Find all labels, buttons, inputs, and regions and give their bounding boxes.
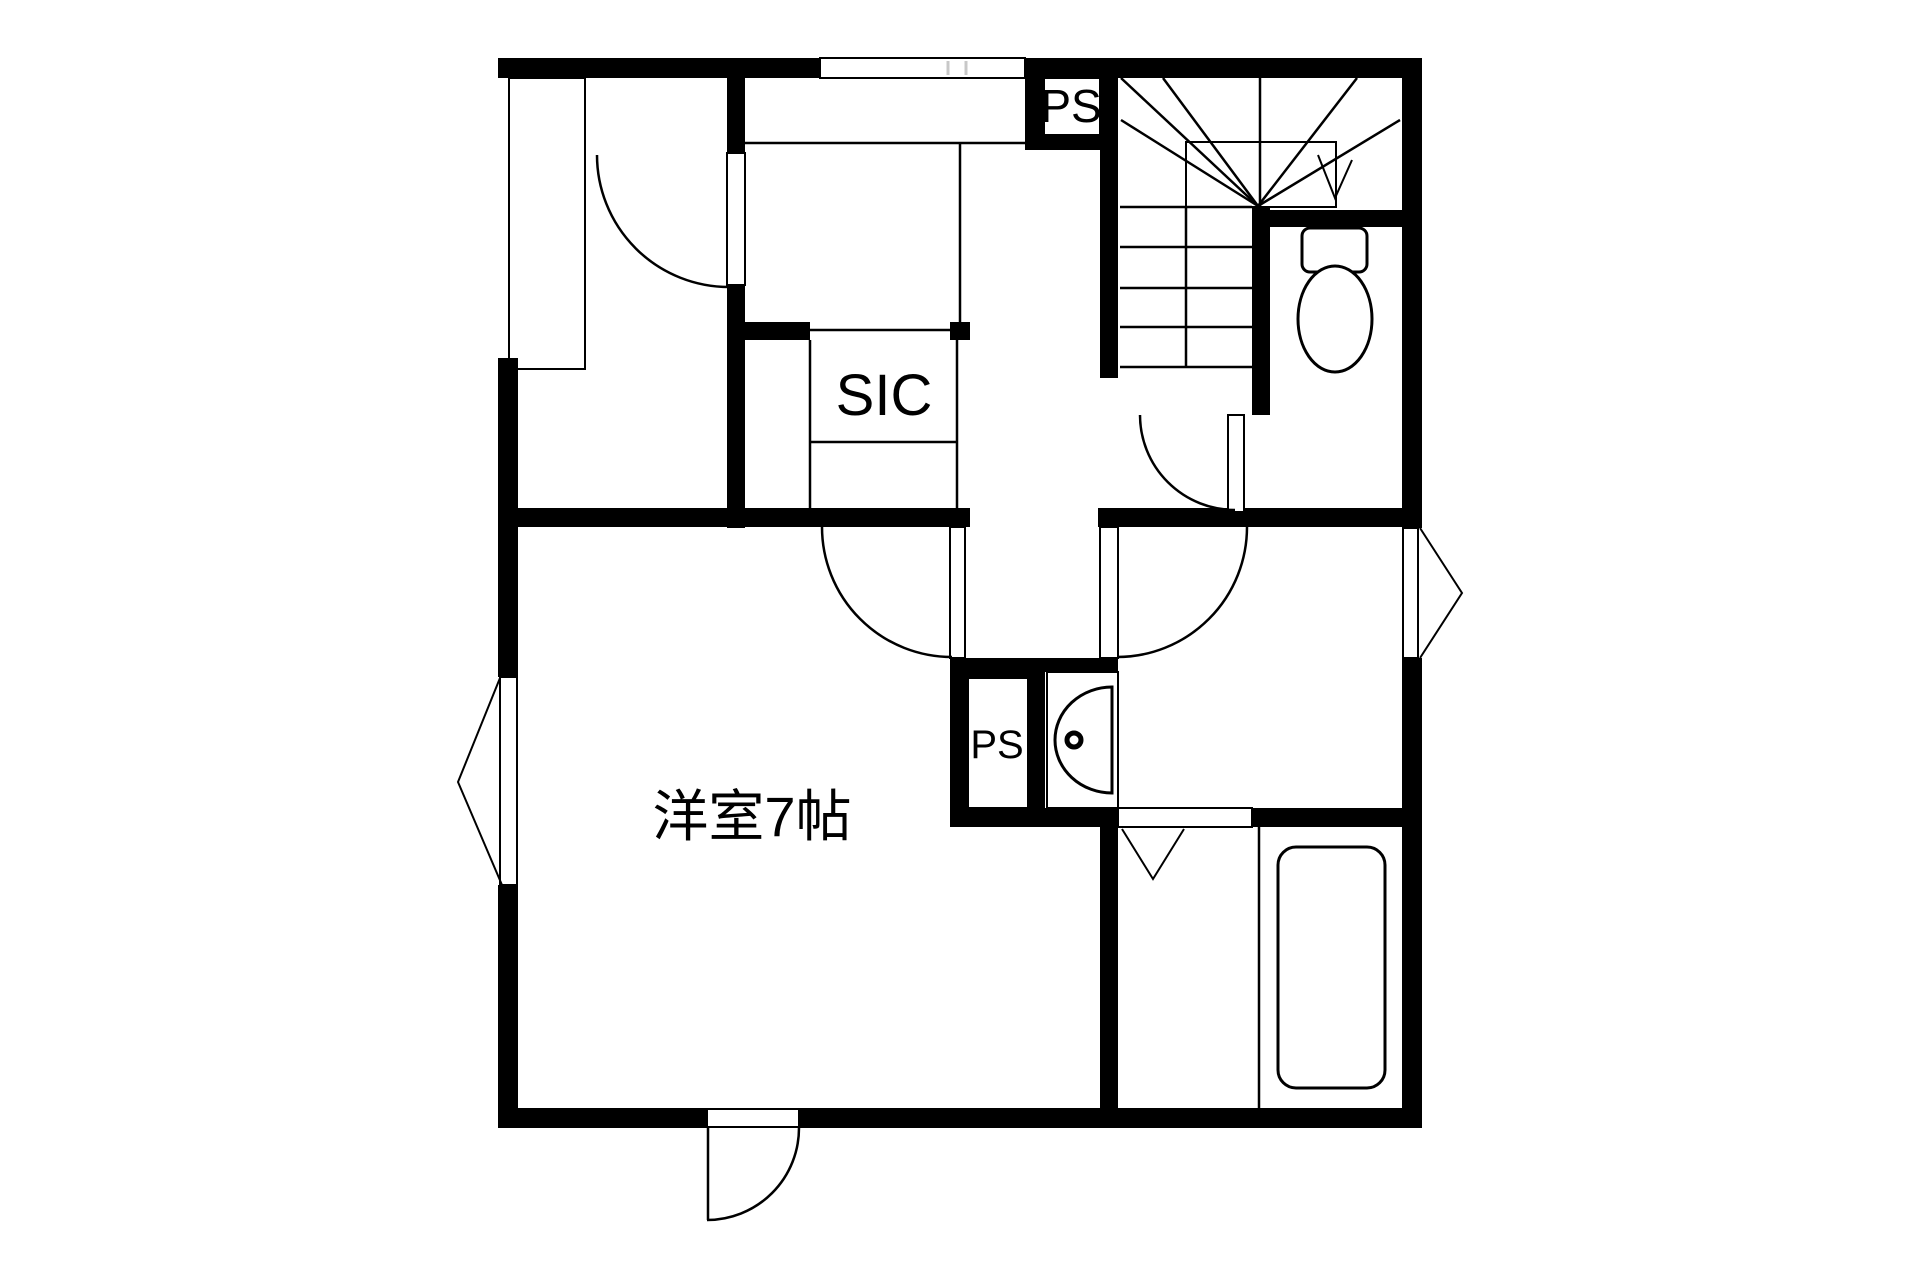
closet-room-door-leaf <box>727 153 745 285</box>
bathroom-west-wall <box>1100 827 1118 1108</box>
toilet-west-wall <box>1252 207 1270 415</box>
stair-west-wall <box>1100 150 1118 378</box>
bathtub <box>1278 847 1385 1088</box>
label-pipe-space-mid: PS <box>970 723 1023 767</box>
sic-wall-stub <box>743 322 810 340</box>
western-room-top-wall <box>498 508 970 527</box>
washroom-door-arc <box>1117 527 1247 657</box>
western-room-door-leaf <box>950 527 965 658</box>
bottom-wall-east <box>799 1108 1422 1128</box>
top-wall-west <box>498 58 820 78</box>
right-wall-upper <box>1402 78 1422 528</box>
left-closet-outline <box>509 78 585 369</box>
entrance-wall-node <box>950 322 970 340</box>
terrace-door-opening <box>707 1109 799 1127</box>
washroom-door-leaf <box>1100 527 1118 658</box>
right-wall-lower <box>1402 658 1422 1128</box>
east-window-triangle <box>1420 528 1462 658</box>
washroom-bottom-wall <box>1252 808 1403 827</box>
stair-winder-line-6 <box>1121 120 1258 206</box>
closet-room-wall-lower <box>727 283 745 528</box>
toilet-door-leaf <box>1228 415 1244 512</box>
sink-faucet <box>1067 733 1081 747</box>
door-arcs <box>597 155 1247 1220</box>
sink-top-bar <box>1045 658 1118 672</box>
entrance-sliding-door <box>820 58 1025 78</box>
toilet-top-wall <box>1270 210 1402 227</box>
top-wall-east <box>1118 58 1422 78</box>
bathroom-folding-door-mark <box>1122 829 1184 879</box>
label-shoe-in-closet: SIC <box>836 363 933 428</box>
terrace-door-arc <box>707 1128 799 1220</box>
toilet-bowl <box>1298 266 1372 372</box>
toilet-door-arc <box>1140 415 1235 510</box>
left-wall-lower <box>498 885 518 1108</box>
western-room-door-arc <box>822 527 952 657</box>
sink-bottom-wall <box>950 808 1120 827</box>
stair-winder-line-5 <box>1258 120 1400 206</box>
west-window-triangle <box>458 678 502 885</box>
label-pipe-space-top: PS <box>1040 80 1101 132</box>
bottom-wall-west <box>498 1108 707 1128</box>
washroom-top-wall <box>1098 508 1402 527</box>
floor-plan-page: PS SIC PS 洋室7帖 <box>0 0 1920 1280</box>
bathroom-door-opening <box>1118 808 1252 827</box>
floor-plan-canvas: PS SIC PS 洋室7帖 <box>0 0 1920 1280</box>
closet-room-door-arc <box>597 155 729 287</box>
closet-room-wall-upper <box>727 78 745 153</box>
east-window <box>1403 528 1418 658</box>
west-window <box>500 677 517 885</box>
label-western-room: 洋室7帖 <box>652 785 851 848</box>
